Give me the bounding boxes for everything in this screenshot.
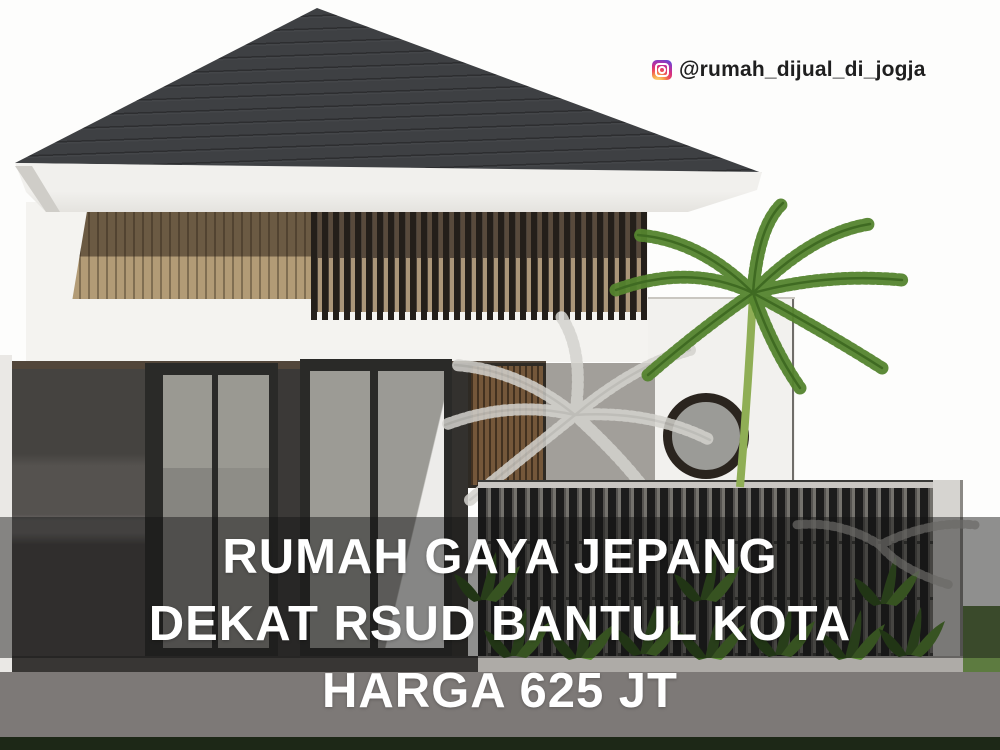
watermark: @rumah_dijual_di_jogja [652, 58, 926, 82]
instagram-handle: @rumah_dijual_di_jogja [679, 58, 926, 82]
caption-line-1: RUMAH GAYA JEPANG [0, 524, 1000, 591]
real-estate-poster: RUMAH GAYA JEPANG DEKAT RSUD BANTUL KOTA… [0, 0, 1000, 750]
palm-tree [616, 203, 902, 487]
instagram-icon [652, 60, 672, 80]
caption-line-2: DEKAT RSUD BANTUL KOTA [0, 591, 1000, 658]
caption-line-3: HARGA 625 JT [0, 658, 1000, 725]
instagram-icon-lens [658, 66, 666, 74]
caption: RUMAH GAYA JEPANG DEKAT RSUD BANTUL KOTA… [0, 524, 1000, 725]
bottom-hedge-strip [0, 737, 1000, 750]
